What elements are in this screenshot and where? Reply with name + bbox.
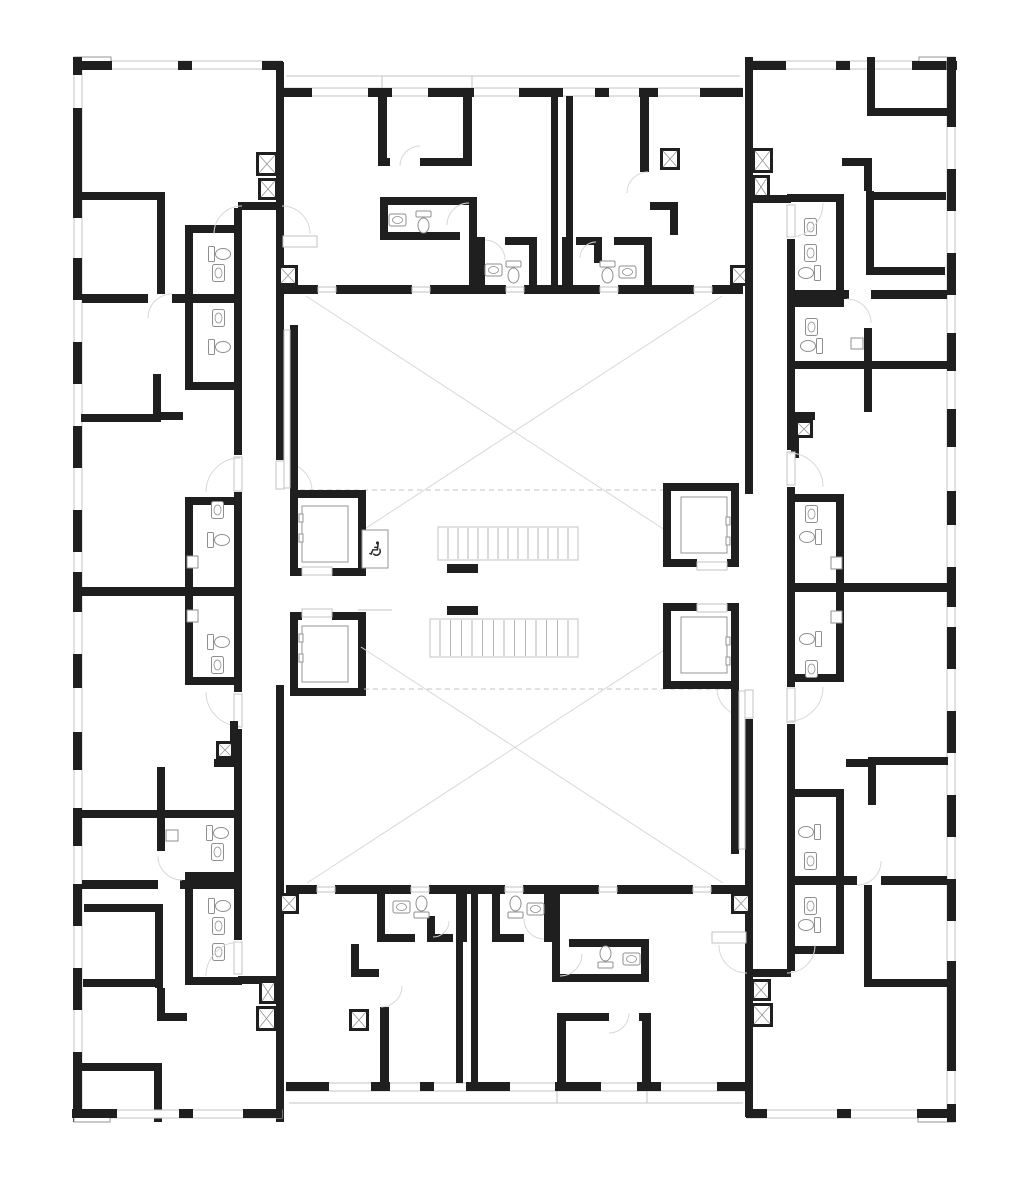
wall-segment (290, 568, 302, 576)
toilet-fixture (418, 218, 429, 233)
wall-segment (836, 194, 844, 291)
window-band (831, 611, 842, 623)
window-band (187, 610, 198, 622)
sink-fixture (805, 853, 817, 870)
wall-segment (157, 412, 183, 420)
wall-segment (82, 1063, 162, 1071)
window-band (726, 537, 730, 545)
sink-fixture (213, 310, 225, 327)
wall-segment (569, 939, 649, 947)
toilet-fixture (416, 211, 431, 217)
wall-segment (290, 490, 298, 576)
door-arc (158, 856, 182, 880)
window-band (234, 457, 242, 491)
wall-segment (73, 732, 82, 770)
wall-segment (947, 961, 956, 1071)
wall-segment (420, 1082, 434, 1091)
sink-fixture (212, 844, 224, 861)
toilet-fixture (598, 962, 613, 968)
sink-fixture (213, 265, 225, 282)
wall-segment (639, 1013, 651, 1021)
toilet-fixture (416, 211, 431, 233)
window-band (302, 567, 332, 575)
wall-segment (663, 483, 739, 491)
wall-segment (670, 202, 678, 235)
wall-segment (73, 884, 82, 926)
wheelchair-accessibility-icon: ♿ (362, 530, 388, 568)
window-band (283, 88, 742, 96)
wall-segment (185, 596, 193, 685)
window-band (697, 604, 727, 612)
toilet-fixture (208, 533, 214, 548)
sink-fixture (806, 506, 818, 523)
wall-segment (380, 232, 460, 240)
window-band (283, 236, 317, 247)
window-band (745, 690, 753, 718)
toilet-fixture (207, 826, 229, 841)
wall-segment (594, 237, 602, 263)
wall-segment (836, 885, 844, 954)
window-band (787, 688, 795, 722)
wall-segment (282, 88, 312, 97)
window-band (787, 452, 795, 485)
wall-segment (872, 757, 948, 765)
wall-segment (185, 497, 193, 589)
toilet-fixture (800, 634, 815, 645)
toilet-fixture (602, 268, 613, 283)
wall-segment (864, 979, 948, 987)
wall-segment (871, 267, 945, 275)
wall-segment (712, 285, 743, 294)
wall-segment (234, 208, 242, 455)
wall-segment (837, 1109, 851, 1118)
toilet-fixture (209, 247, 231, 262)
wall-segment (640, 93, 649, 172)
toilet-fixture (207, 826, 213, 841)
wall-segment (866, 191, 874, 275)
wall-segment (73, 258, 82, 300)
wall-segment (276, 62, 284, 460)
window-band (693, 887, 711, 892)
wall-segment (557, 1013, 566, 1084)
sink-fixture (212, 502, 224, 519)
wall-segment (336, 285, 412, 294)
wall-segment (185, 872, 242, 880)
wall-segment (867, 57, 875, 116)
window-band (712, 932, 746, 943)
wall-segment (523, 885, 599, 894)
wall-segment (947, 57, 956, 127)
toilet-fixture (799, 268, 814, 279)
wall-segment (73, 654, 82, 688)
wall-segment (576, 237, 596, 245)
wall-segment (787, 724, 795, 971)
wall-segment (290, 490, 366, 498)
sink-fixture (805, 245, 817, 262)
wall-segment (180, 880, 238, 889)
wall-segment (380, 1007, 389, 1086)
wall-segment (429, 885, 505, 894)
toilet-fixture (510, 896, 521, 911)
wall-segment (836, 789, 844, 876)
toilet-fixture (209, 899, 231, 914)
wall-segment (731, 603, 739, 689)
wall-segment (871, 290, 947, 299)
floor-plan: ♿ (0, 0, 1024, 1184)
window-band (697, 562, 727, 570)
wall-segment (283, 285, 318, 294)
wall-segment (82, 880, 158, 889)
wall-segment (378, 95, 387, 163)
toilet-fixture (214, 828, 229, 839)
wall-segment (243, 1109, 282, 1118)
wall-segment (73, 808, 82, 846)
wall-segment (73, 61, 112, 70)
wall-segment (791, 290, 849, 299)
toilet-fixture (209, 899, 215, 914)
door-arc (400, 146, 420, 166)
window-band (299, 634, 303, 642)
window-band (318, 287, 336, 292)
wall-segment (427, 916, 435, 942)
toilet-fixture (799, 825, 821, 840)
toilet-fixture (801, 339, 823, 354)
sink-fixture (393, 901, 410, 913)
sink-fixture (527, 903, 544, 915)
window-band (317, 887, 335, 892)
wall-segment (947, 795, 956, 837)
toilet-fixture (506, 261, 521, 283)
wall-segment (430, 285, 506, 294)
wall-segment (947, 409, 956, 447)
window-band (299, 654, 303, 662)
sink-fixture (213, 918, 225, 935)
wall-segment (787, 494, 844, 502)
wall-segment (155, 904, 163, 988)
wall-segment (947, 879, 956, 921)
wall-segment (433, 934, 453, 942)
door-arc (282, 206, 310, 234)
wall-segment (842, 158, 872, 166)
wall-segment (157, 767, 165, 851)
window-band (505, 887, 523, 892)
sink-fixture (212, 657, 224, 674)
wall-segment (731, 689, 739, 854)
window-band (681, 497, 727, 553)
door-arc (447, 203, 469, 225)
wall-segment (469, 205, 477, 293)
wall-segment (290, 612, 298, 696)
wall-segment (185, 677, 242, 685)
wall-segment (471, 893, 478, 1083)
wall-segment (663, 603, 671, 689)
wall-segment (617, 885, 693, 894)
sink-fixture (619, 266, 636, 278)
toilet-fixture (209, 340, 215, 355)
toilet-fixture (216, 901, 231, 912)
wall-segment (846, 759, 872, 767)
wall-segment (185, 977, 242, 985)
sink-fixture (623, 953, 640, 965)
door-arc (560, 954, 582, 976)
wall-segment (466, 1082, 510, 1091)
toilet-fixture (800, 530, 822, 545)
wall-segment (700, 88, 743, 97)
toilet-fixture (799, 920, 814, 931)
wall-segment (82, 587, 238, 596)
toilet-fixture (800, 532, 815, 543)
wall-segment (947, 169, 956, 211)
window-band (284, 330, 290, 488)
door-arc (847, 299, 871, 323)
toilet-fixture (801, 341, 816, 352)
wall-segment (519, 88, 563, 97)
toilet-fixture (799, 266, 821, 281)
toilet-fixture (816, 632, 822, 647)
door-arc (381, 986, 402, 1007)
wall-segment (82, 294, 148, 303)
door-arc (148, 294, 172, 318)
sink-fixture (485, 264, 502, 276)
wall-segment (332, 568, 366, 576)
window-band (726, 657, 730, 665)
sink-fixture (212, 844, 224, 861)
sink-fixture (213, 944, 225, 961)
wall-segment (447, 606, 478, 615)
window-band (302, 626, 348, 682)
wall-segment (179, 1109, 193, 1118)
wall-segment (81, 192, 165, 200)
toilet-fixture (209, 247, 215, 262)
window-band (600, 287, 618, 292)
wall-segment (745, 719, 753, 1117)
window-band (299, 514, 303, 522)
wall-segment (73, 968, 82, 1010)
wall-segment (717, 1082, 747, 1091)
wall-segment (836, 61, 850, 70)
wall-segment (185, 303, 193, 390)
sink-fixture (619, 266, 636, 278)
wall-segment (185, 382, 242, 390)
sink-fixture (485, 264, 502, 276)
wall-segment (881, 876, 947, 885)
wall-segment (731, 483, 739, 567)
window-band (694, 287, 712, 292)
sink-fixture (213, 310, 225, 327)
wall-segment (185, 225, 193, 294)
wall-segment (81, 414, 157, 422)
floor-plan-canvas (0, 0, 1024, 1184)
window-band (726, 517, 730, 525)
wall-segment (836, 590, 844, 682)
sink-fixture (806, 319, 818, 336)
door-arc (609, 1013, 629, 1033)
wall-segment (552, 886, 560, 974)
toilet-fixture (508, 896, 523, 918)
toilet-fixture (815, 918, 821, 933)
toilet-fixture (209, 340, 231, 355)
wall-segment (867, 108, 947, 116)
wall-segment (81, 810, 238, 818)
window-band (276, 461, 284, 489)
toilet-fixture (600, 946, 611, 961)
sink-fixture (213, 944, 225, 961)
window-band (506, 287, 524, 292)
wall-segment (864, 328, 872, 412)
wall-segment (335, 885, 411, 894)
wall-segment (947, 627, 956, 669)
window-band (302, 609, 332, 617)
toilet-fixture (215, 535, 230, 546)
toilet-fixture (817, 339, 823, 354)
window-band (187, 556, 198, 568)
sink-fixture (212, 657, 224, 674)
wall-segment (378, 158, 390, 166)
door-arc (627, 172, 648, 193)
sink-fixture (806, 661, 818, 678)
sink-fixture (805, 245, 817, 262)
wall-segment (866, 192, 946, 200)
window-band (299, 534, 303, 542)
wall-segment (286, 1082, 329, 1091)
toilet-fixture (600, 261, 615, 267)
sink-fixture (213, 918, 225, 935)
wall-segment (745, 57, 753, 494)
toilet-fixture (216, 249, 231, 260)
door-arc (719, 945, 747, 973)
wall-segment (836, 494, 844, 583)
wall-segment (947, 491, 956, 525)
wall-segment (524, 285, 600, 294)
wall-segment (157, 1013, 187, 1021)
wall-segment (72, 1109, 117, 1118)
wall-segment (614, 237, 646, 245)
wall-segment (172, 294, 238, 303)
wall-segment (185, 888, 193, 985)
window-band (234, 942, 242, 974)
window-band (787, 205, 795, 237)
wall-segment (711, 885, 746, 894)
window-band (412, 287, 430, 292)
wall-segment (73, 510, 82, 552)
toilet-fixture (815, 825, 821, 840)
wall-segment (463, 95, 472, 166)
toilet-fixture (508, 912, 523, 918)
wall-segment (595, 88, 609, 97)
wall-segment (787, 194, 844, 202)
sink-fixture (805, 853, 817, 870)
wall-segment (290, 325, 298, 490)
window-band (411, 887, 429, 892)
wall-segment (185, 225, 242, 233)
wall-segment (663, 483, 671, 567)
toilet-fixture (208, 635, 230, 650)
window-band (739, 691, 745, 849)
wall-segment (791, 361, 948, 369)
sink-fixture (212, 502, 224, 519)
wall-segment (642, 1016, 651, 1084)
wall-segment (727, 603, 739, 611)
wall-segment (917, 1109, 956, 1118)
sink-fixture (805, 898, 817, 915)
sink-fixture (805, 219, 817, 236)
toilet-fixture (815, 266, 821, 281)
sink-fixture (623, 953, 640, 965)
wall-segment (83, 979, 163, 987)
door-arc (485, 240, 505, 260)
toilet-fixture (216, 342, 231, 353)
wall-segment (380, 205, 388, 235)
wall-segment (73, 108, 82, 218)
wall-segment (947, 567, 956, 607)
wall-segment (947, 333, 956, 371)
toilet-fixture (508, 268, 519, 283)
wall-segment (73, 342, 82, 384)
sink-fixture (527, 903, 544, 915)
toilet-fixture (506, 261, 521, 267)
wall-segment (290, 688, 366, 696)
window-band (166, 830, 178, 841)
door-arc (524, 919, 544, 939)
wall-segment (947, 253, 956, 295)
toilet-fixture (215, 637, 230, 648)
wall-segment (447, 564, 478, 573)
window-band (681, 617, 727, 673)
sink-fixture (806, 319, 818, 336)
sink-fixture (806, 661, 818, 678)
sink-fixture (389, 214, 406, 226)
wall-segment (178, 61, 192, 70)
wall-segment (787, 946, 844, 954)
toilet-fixture (598, 946, 613, 968)
sink-fixture (806, 506, 818, 523)
sink-fixture (805, 898, 817, 915)
window-band (599, 887, 617, 892)
wall-segment (787, 789, 844, 797)
window-band (302, 506, 348, 562)
wall-segment (73, 426, 82, 468)
toilet-fixture (414, 912, 429, 918)
wall-segment (84, 904, 158, 912)
toilet-fixture (208, 635, 214, 650)
wall-segment (663, 681, 739, 689)
wall-segment (157, 192, 165, 294)
window-band (851, 338, 863, 349)
wall-segment (286, 885, 317, 894)
wall-segment (641, 944, 649, 974)
toilet-fixture (799, 827, 814, 838)
wall-segment (551, 96, 558, 286)
wall-segment (383, 934, 415, 942)
toilet-fixture (416, 896, 427, 911)
wall-segment (787, 299, 844, 307)
toilet-fixture (414, 896, 429, 918)
wall-segment (787, 239, 795, 450)
wall-segment (947, 711, 956, 753)
sink-fixture (393, 901, 410, 913)
sink-fixture (213, 265, 225, 282)
toilet-fixture (208, 533, 230, 548)
toilet-fixture (816, 530, 822, 545)
wall-segment (214, 759, 238, 767)
toilet-fixture (799, 918, 821, 933)
window-band (831, 557, 842, 569)
wall-segment (73, 572, 82, 612)
wall-segment (864, 885, 872, 987)
toilet-fixture (600, 261, 615, 283)
window-band (726, 637, 730, 645)
door-arc (857, 861, 881, 885)
